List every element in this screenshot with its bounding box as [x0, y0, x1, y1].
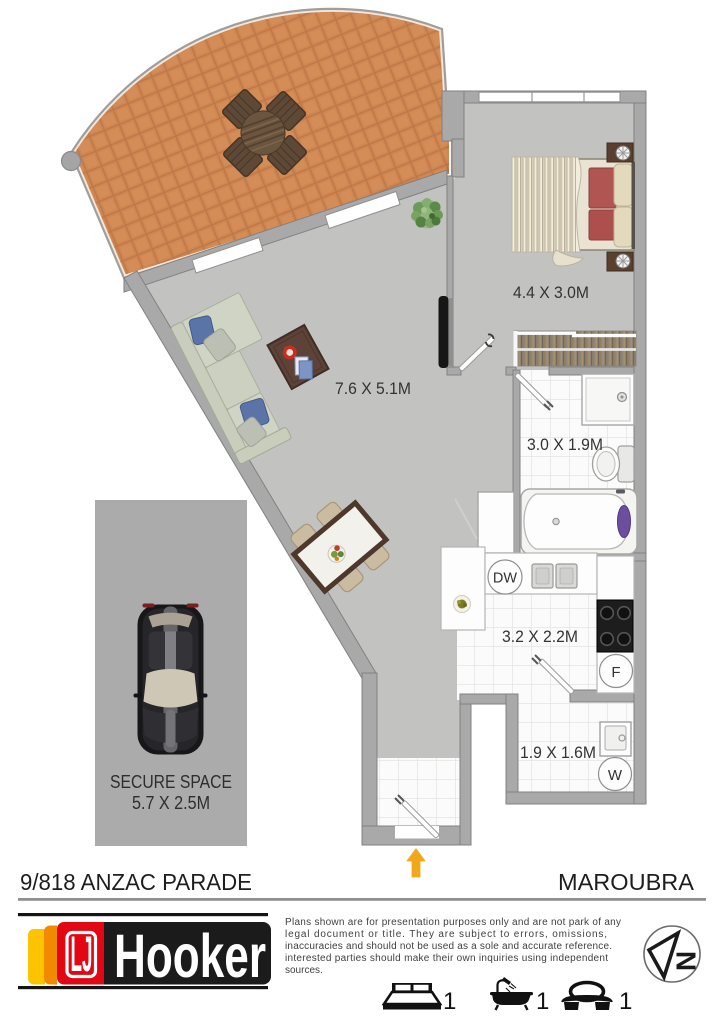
svg-text:sources.: sources. [285, 965, 323, 976]
svg-text:7.6 X 5.1M: 7.6 X 5.1M [335, 379, 411, 398]
svg-text:LJ: LJ [71, 926, 93, 982]
svg-text:3.0 X 1.9M: 3.0 X 1.9M [527, 435, 603, 454]
svg-text:W: W [608, 767, 623, 784]
svg-text:Hooker: Hooker [114, 922, 266, 990]
svg-text:1: 1 [619, 988, 632, 1015]
svg-text:legal document or title. They: legal document or title. They are subjec… [285, 929, 607, 940]
svg-text:1: 1 [536, 988, 549, 1015]
svg-text:F: F [611, 664, 620, 681]
svg-text:MAROUBRA: MAROUBRA [558, 869, 694, 895]
svg-text:Plans shown are for presentati: Plans shown are for presentation purpose… [285, 917, 621, 928]
svg-text:9/818 ANZAC PARADE: 9/818 ANZAC PARADE [20, 869, 252, 895]
svg-text:1.9 X 1.6M: 1.9 X 1.6M [520, 743, 596, 762]
svg-text:SECURE SPACE: SECURE SPACE [110, 772, 232, 792]
svg-text:1: 1 [443, 988, 456, 1015]
svg-text:4.4 X 3.0M: 4.4 X 3.0M [513, 283, 589, 302]
svg-text:5.7 X 2.5M: 5.7 X 2.5M [132, 793, 210, 813]
svg-text:N: N [671, 951, 702, 971]
svg-text:inaccuracies and should not be: inaccuracies and should not be used as a… [285, 941, 612, 952]
svg-text:interested parties should make: interested parties should make their own… [285, 953, 608, 964]
svg-text:DW: DW [493, 571, 517, 587]
svg-text:3.2 X 2.2M: 3.2 X 2.2M [502, 627, 578, 646]
